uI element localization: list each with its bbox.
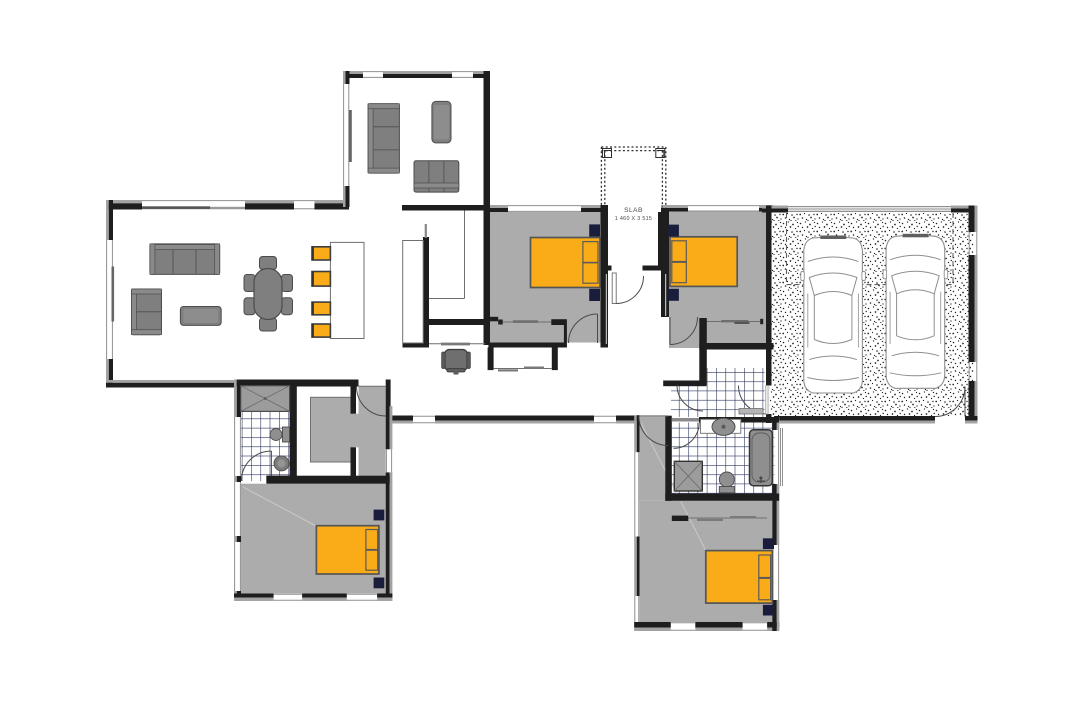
svg-text:SLAB: SLAB [624,207,643,214]
svg-text:1 460 X 3 515: 1 460 X 3 515 [615,216,652,222]
